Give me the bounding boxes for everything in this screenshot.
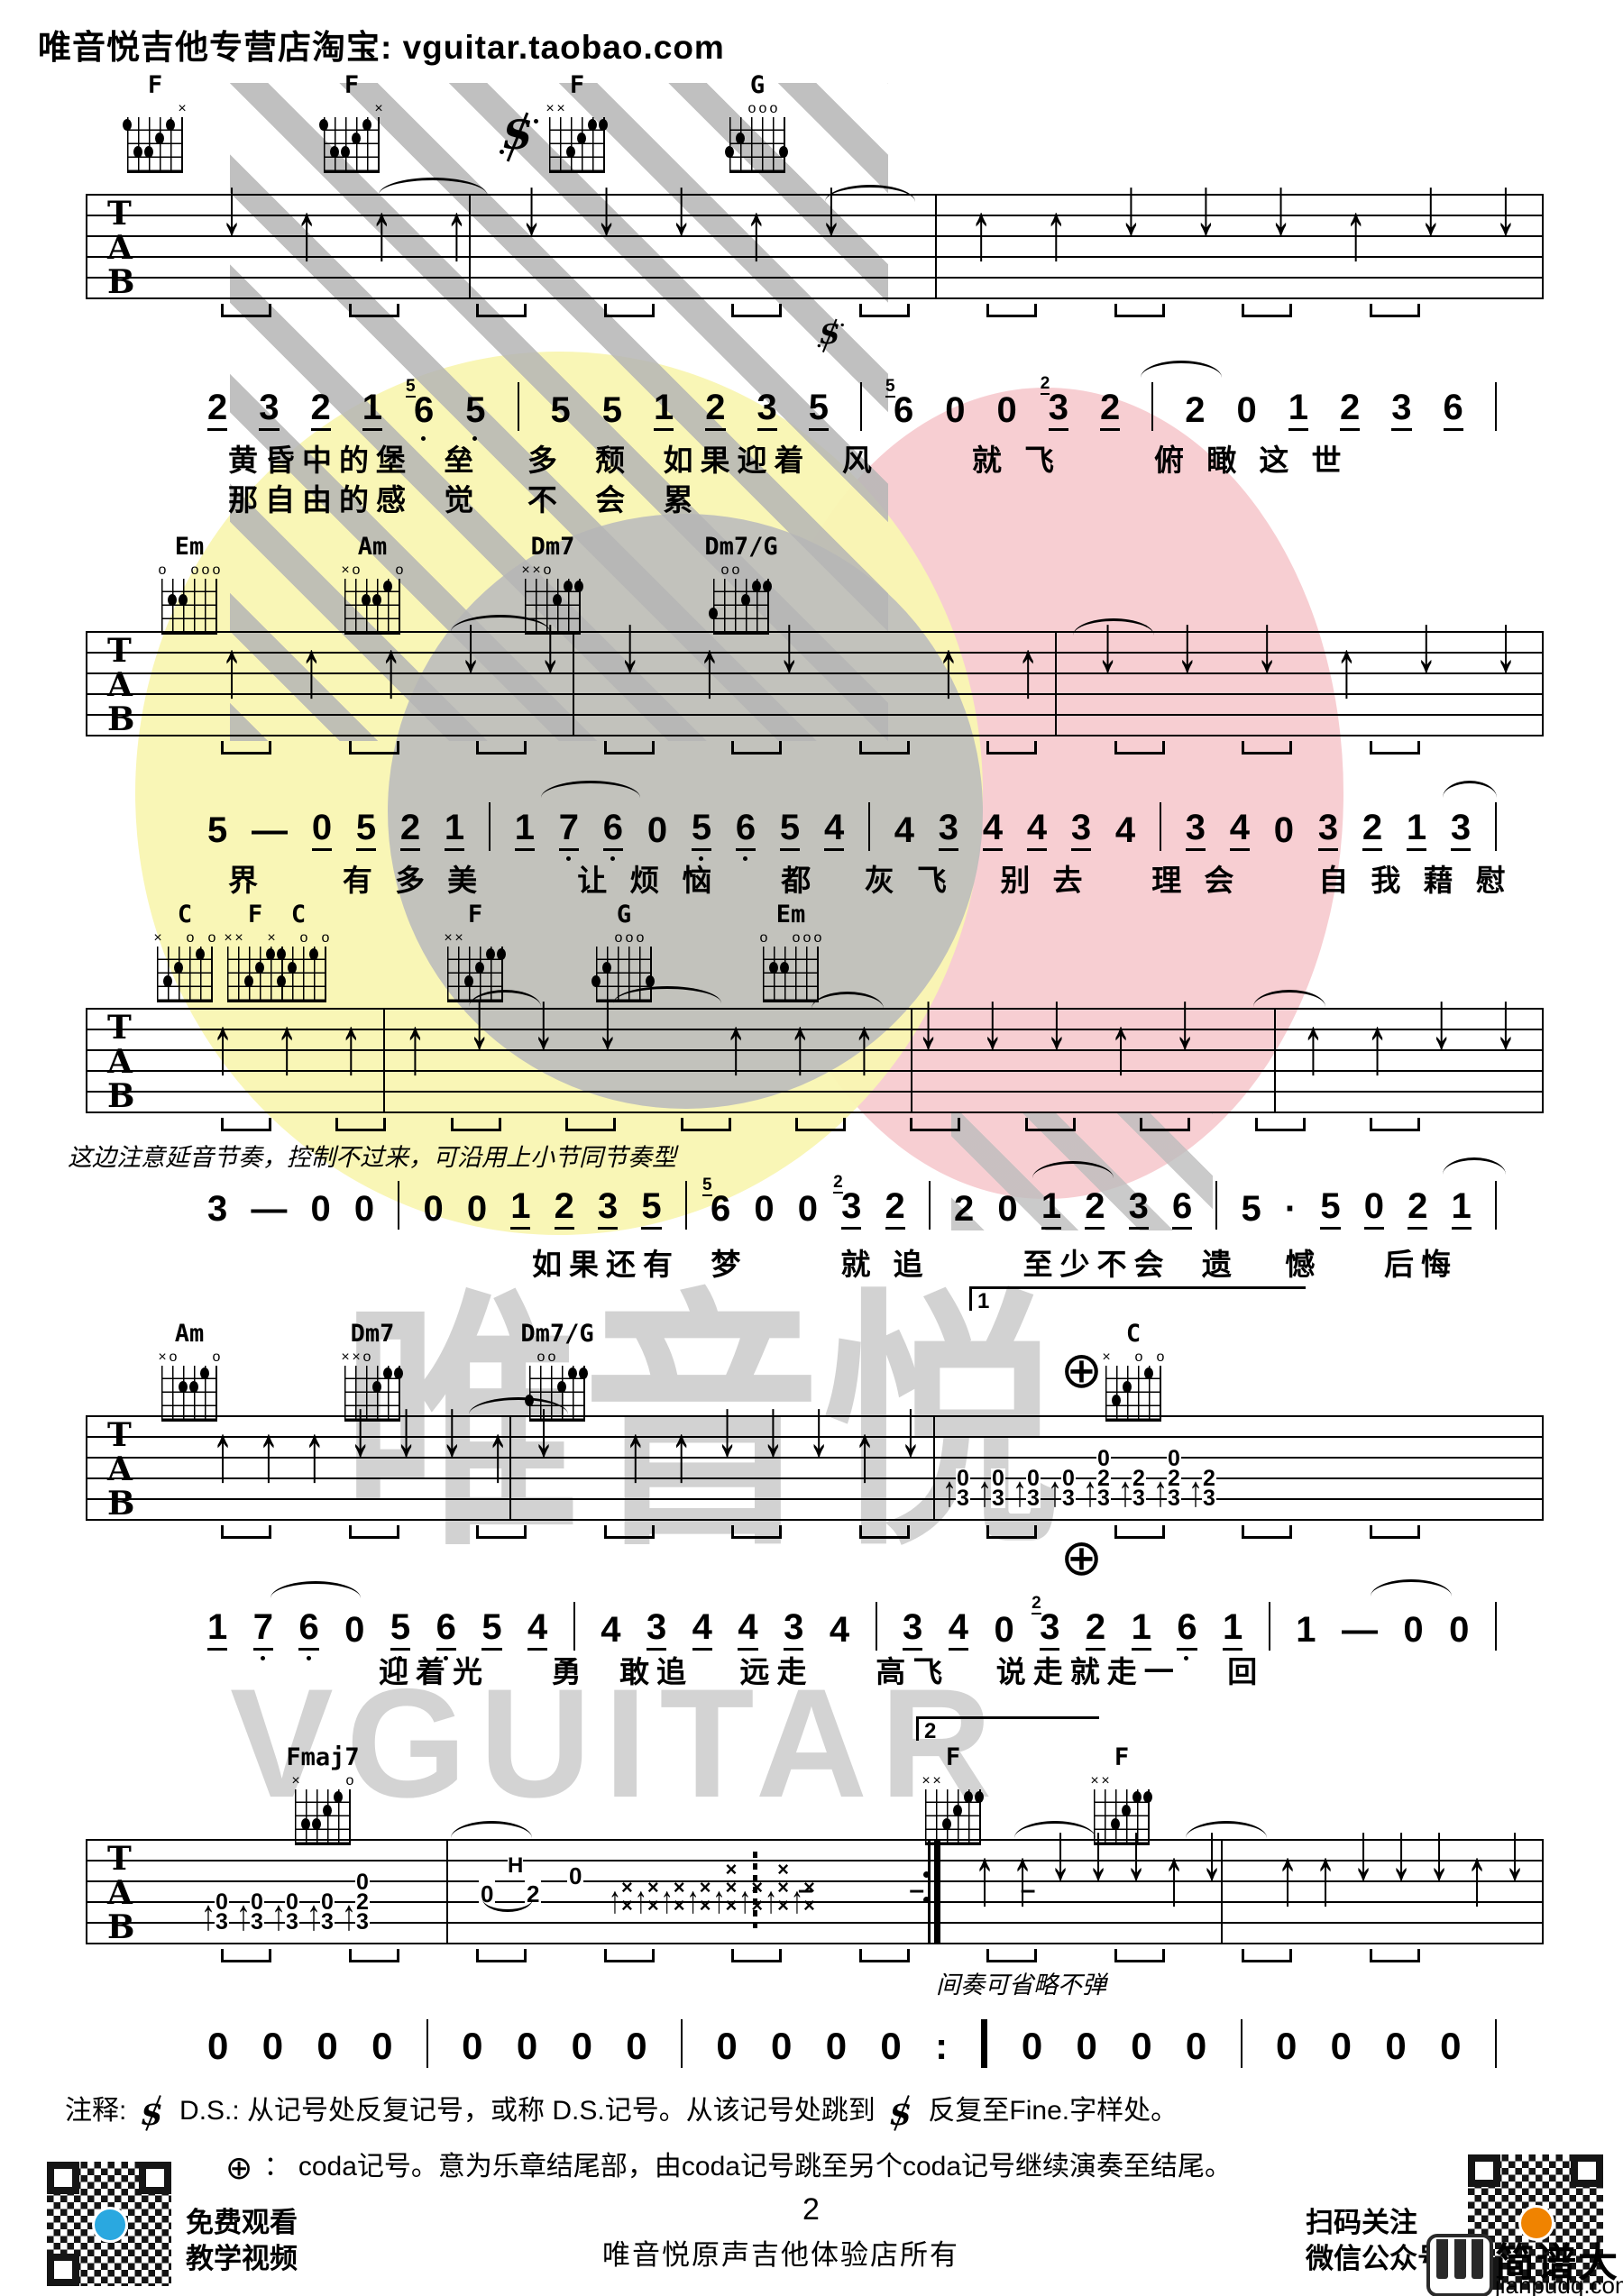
tab-letter-T: T: [107, 1419, 132, 1451]
tab-letter-A: A: [107, 232, 133, 264]
chord-marks: ooo: [730, 101, 784, 117]
chord-dot: [1111, 1818, 1120, 1830]
chord-C: C ×oo: [147, 901, 223, 1002]
strum-arrows: ↑↑↑↓↓↓↑↓↑↑↓↓↓↑↓: [212, 1406, 922, 1525]
note-token: 0: [647, 812, 667, 851]
grace-number: 2: [1032, 1595, 1041, 1615]
tab-letter-T: T: [107, 635, 132, 667]
chord-dot: [133, 146, 142, 158]
chord-dot: [277, 975, 286, 987]
chord-label: G: [586, 901, 662, 930]
tab-token-column: 03: [285, 1872, 299, 1932]
note-digit: 4: [983, 810, 1003, 851]
note-digit: 0: [798, 1191, 818, 1230]
barline: [1241, 2019, 1242, 2068]
string-mark: o: [210, 1349, 223, 1366]
chord-diagram: [713, 579, 769, 635]
note-digit: 4: [692, 1609, 712, 1651]
note-token: 6: [298, 1609, 318, 1651]
note-token: 2: [1086, 1609, 1105, 1651]
note-digit: 3: [1391, 389, 1411, 431]
beam: [1370, 1118, 1420, 1131]
chord-dot: [383, 1368, 392, 1379]
note-token: 0: [1440, 2027, 1461, 2068]
strum-up-icon: ↑: [1367, 1006, 1389, 1088]
note-digit: 5: [207, 812, 227, 851]
chord-dot: [144, 146, 153, 158]
strum-down-icon: ↓: [1270, 167, 1292, 249]
segno-icon: [142, 2098, 165, 2128]
chord-marks: oooo: [162, 563, 216, 579]
note-digit: 5: [390, 1609, 410, 1651]
beam: [476, 1525, 527, 1539]
beam: [1255, 1118, 1306, 1131]
note-digit: 7: [253, 1609, 273, 1651]
chord-dot: [352, 133, 361, 144]
note-token: 0: [423, 1191, 443, 1230]
strum-up-icon: ↑: [371, 192, 392, 274]
tab-token-column: 03: [215, 1872, 229, 1932]
note-digit: 1: [1452, 1188, 1472, 1230]
barline: [1215, 1181, 1217, 1230]
note-digit: 0: [647, 812, 667, 851]
chord-dot: [975, 1791, 984, 1803]
chord-dot: [288, 962, 297, 974]
chord-dot: [394, 1368, 403, 1379]
tab-number: 3: [1061, 1488, 1076, 1508]
note-digit: 2: [1086, 1609, 1105, 1651]
chord-F: F ×: [314, 72, 390, 173]
note-digit: 3: [598, 1188, 618, 1230]
note-digit: 1: [510, 1188, 530, 1230]
chord-marks: ××o: [526, 563, 580, 579]
chord-dot: [566, 146, 575, 158]
note-digit: 5: [551, 392, 571, 431]
note-token: 5: [207, 812, 227, 851]
chord-F: F ××: [437, 901, 513, 1002]
string-mark: ×: [931, 1773, 943, 1789]
tab-number: 3: [1132, 1488, 1146, 1508]
tab-staff-2: T A B ↑↑↑↓↓↓↑↓↑↑↓↓↓↑↓↓: [86, 631, 1544, 736]
note-digit: 2: [1340, 389, 1360, 431]
note-token: 7: [559, 810, 579, 851]
chord-Dm7: Dm7 ××o: [335, 1321, 410, 1422]
note-token: 0: [462, 2027, 482, 2068]
strum-up-icon: ↑: [687, 1879, 700, 1922]
strum-down-icon: ↓: [533, 981, 555, 1063]
strum-up-icon: ↑: [942, 1467, 957, 1517]
note-token: 0: [716, 2027, 737, 2068]
chord-diagram: [127, 117, 183, 173]
chord-dot: [334, 1791, 343, 1803]
chord-dot: [475, 962, 484, 974]
barline: [426, 2019, 428, 2068]
chord-Em: Em oooo: [151, 534, 227, 635]
beam: [1242, 304, 1292, 317]
barline: [1151, 382, 1153, 431]
tab-token: ↑03: [201, 1872, 229, 1932]
note-digit: 2: [705, 389, 725, 431]
strum-up-icon: ↑: [738, 1879, 751, 1922]
page-number: 2: [802, 2192, 820, 2227]
strum-up-icon: ↑: [1163, 1837, 1185, 1919]
strum-up-icon: ↑: [725, 1006, 747, 1088]
note-digit: 0: [1131, 2027, 1151, 2068]
beam: [910, 1118, 960, 1131]
beam: [349, 304, 399, 317]
note-digit: 3: [646, 1609, 666, 1651]
melody-line-4: 176056544344343402321611—00: [207, 1598, 1497, 1651]
note-digit: 0: [311, 1191, 331, 1230]
string-mark: ×: [176, 101, 188, 117]
hammer-arc: [482, 1898, 533, 1912]
caption-line: 免费观看: [186, 2207, 298, 2238]
chord-marks: ××: [926, 1773, 980, 1789]
chord-dot: [123, 119, 132, 131]
beam: [986, 741, 1037, 755]
note-token: 4: [1027, 810, 1047, 851]
beam: [451, 1118, 501, 1131]
note-token: 0: [1276, 2027, 1297, 2068]
string-mark: o: [393, 563, 406, 579]
strum-up-icon: ↑: [236, 1890, 251, 1941]
note-digit: 0: [572, 2027, 592, 2068]
note-digit: 0: [826, 2027, 847, 2068]
note-token: 56: [894, 392, 913, 431]
barline: [489, 802, 491, 851]
note-digit: 2: [311, 389, 331, 431]
footnote-ds: 注释: D.S.: 从记号处反复记号，或称 D.S.记号。从该记号处跳到 反复至…: [65, 2088, 1178, 2128]
muted-token: ↑××: [738, 1879, 763, 1915]
note-digit: 0: [354, 1191, 374, 1230]
beam: [476, 304, 527, 317]
beam: [1025, 1118, 1076, 1131]
hammer-on-label: H: [508, 1853, 523, 1879]
note-token: 0: [994, 1612, 1013, 1651]
note-token: 2: [1085, 1188, 1105, 1230]
note-token: 1: [654, 389, 674, 431]
chord-dot: [189, 1381, 198, 1393]
note-token: 6: [603, 810, 623, 851]
strum-up-icon: ↑: [1335, 629, 1357, 711]
chord-dot: [168, 594, 177, 606]
note-digit: 2: [1362, 810, 1382, 851]
beam: [795, 1118, 846, 1131]
strum-down-icon: ↓: [596, 167, 618, 249]
chord-marks: oooo: [764, 930, 818, 947]
tab-letter-B: B: [107, 1911, 134, 1944]
chord-Em: Em oooo: [753, 901, 829, 1002]
tab-letter-T: T: [107, 197, 132, 230]
chord-marks: ooo: [597, 930, 651, 947]
note-token: 0: [311, 1191, 331, 1230]
chord-dot: [309, 948, 318, 960]
tab-token: ↑023: [1153, 1449, 1181, 1508]
strum-down-icon: ↓: [221, 167, 243, 249]
note-digit: 2: [207, 389, 227, 431]
beam: [335, 1118, 386, 1131]
chord-dot: [579, 1368, 588, 1379]
barline: [681, 2019, 683, 2068]
strum-up-icon: ↑: [212, 1413, 234, 1496]
note-digit: 2: [400, 810, 420, 851]
chord-marks: oo: [530, 1349, 584, 1366]
strum-up-icon: ↑: [1048, 1467, 1062, 1517]
tab-token: ↑23: [1188, 1449, 1216, 1508]
note-token: 2: [1340, 389, 1360, 431]
chord-F: F ××: [1084, 1744, 1160, 1845]
strum-down-icon: ↓: [900, 1388, 922, 1470]
qr-caption-right: 扫码关注 微信公众号: [1306, 2205, 1445, 2277]
note-token: ·: [1285, 1191, 1297, 1230]
note-digit: 6: [436, 1609, 456, 1651]
strum-down-icon: ↓: [1174, 981, 1196, 1063]
chord-dot: [568, 1368, 577, 1379]
melody-line-2: 5—0521176056544344343403213: [207, 799, 1497, 851]
note-digit: 0: [945, 392, 965, 431]
tab-token-column: 03: [991, 1449, 1005, 1508]
chord-dot: [163, 975, 172, 987]
strum-up-icon: ↑: [712, 1879, 725, 1922]
qr-code-left: [47, 2162, 171, 2286]
coda-icon: ⊕: [225, 2149, 252, 2186]
tab-token-column: 03: [1026, 1449, 1041, 1508]
grace-number: 2: [833, 1174, 843, 1194]
note-token: 5: [481, 1609, 501, 1651]
tab-token: ↑03: [1048, 1449, 1076, 1508]
note-token: 23: [841, 1188, 861, 1230]
note-digit: 5: [641, 1188, 661, 1230]
chord-dot: [557, 1381, 566, 1393]
beam: [1370, 741, 1420, 755]
chord-diagram: [157, 947, 213, 1002]
melody-line-1: 23215655512355600232201236: [207, 379, 1497, 431]
note-token: 0: [1364, 1188, 1384, 1230]
strum-up-icon: ↑: [938, 629, 959, 711]
tab-token: ↑023: [342, 1872, 370, 1932]
tab-letter-A: A: [107, 1453, 133, 1486]
chord-F: F ××: [539, 72, 615, 173]
octave-dot: [307, 1656, 311, 1660]
note-token: 0: [207, 2027, 228, 2068]
note-digit: 1: [362, 389, 382, 431]
muted-token: ↑××: [661, 1879, 685, 1915]
note-token: 0: [312, 810, 332, 851]
note-digit: 3: [1049, 389, 1068, 431]
string-mark: ×: [1100, 1349, 1113, 1366]
note-token: 4: [692, 1609, 712, 1651]
segno-icon: [501, 115, 534, 159]
chord-diagram: [763, 947, 819, 1002]
chord-dot: [602, 962, 611, 974]
slur-arc: [379, 178, 487, 195]
tab-arpeggio-tokens: ↑03↑03↑03↑03↑023: [201, 1872, 377, 1932]
chord-dot: [953, 1805, 962, 1816]
lyrics-line-1a: 黄昏中的堡 垒 多 颓 如果迎着 风 就 飞 俯 瞰 这 世: [228, 436, 1349, 480]
note-digit: 1: [654, 389, 674, 431]
strum-up-icon: ↑: [445, 192, 467, 274]
tab-token-column: 023: [355, 1872, 370, 1932]
tab-token-column: 23: [1132, 1449, 1146, 1508]
strum-up-icon: ↑: [671, 1413, 692, 1496]
note-token: 3: [939, 810, 958, 851]
string-mark: ×: [1099, 1773, 1112, 1789]
barline: [981, 2019, 987, 2068]
note-digit: 3: [1071, 810, 1091, 851]
note-token: 0: [1449, 1612, 1469, 1651]
note-digit: 3: [1040, 1609, 1059, 1651]
brand-domain: jianpudq.com: [1495, 2272, 1623, 2296]
note-digit: 5: [602, 392, 622, 431]
note-digit: 0: [312, 810, 332, 851]
grace-number: 2: [1041, 375, 1050, 395]
tie-arc: [1032, 1161, 1114, 1178]
note-digit: 6: [603, 810, 623, 851]
note-token: 3: [757, 389, 777, 431]
beam: [1242, 1949, 1292, 1962]
tab-token: ↑03: [271, 1872, 299, 1932]
chord-label: Dm7: [515, 534, 591, 563]
note-token: 4: [527, 1609, 547, 1651]
beam: [349, 1525, 399, 1539]
barline: [1160, 802, 1161, 851]
chord-dot: [464, 975, 473, 987]
note-token: —: [251, 1191, 287, 1230]
strum-down-icon: ↓: [1177, 604, 1198, 686]
barline: [1495, 382, 1497, 431]
note-token: 4: [738, 1609, 757, 1651]
note-digit: 6: [894, 392, 913, 431]
chord-F: F ×: [117, 72, 193, 173]
chord-diagram: [1094, 1789, 1150, 1845]
note-digit: 4: [601, 1612, 620, 1651]
muted-strum-tokens: ↑××↑××↑××↑××↑×××↑××↑×××↑××: [609, 1861, 815, 1915]
slur-arc: [451, 1821, 532, 1838]
note-token: —: [1342, 1612, 1378, 1651]
string-mark: o: [210, 563, 223, 579]
note-digit: 5: [809, 389, 829, 431]
note-token: 3: [1318, 810, 1338, 851]
note-token: 0: [798, 1191, 818, 1230]
tab-token: ↑023: [1083, 1449, 1111, 1508]
chord-marks: ×oo: [271, 930, 326, 947]
string-mark: ×: [151, 930, 164, 947]
chord-dot: [780, 962, 789, 974]
strum-up-icon: ↑: [1188, 1467, 1203, 1517]
note-digit: 0: [371, 2027, 392, 2068]
strum-up-icon: ↑: [212, 1006, 234, 1088]
tab-number: 3: [285, 1912, 299, 1932]
chord-label: Am: [151, 1321, 227, 1349]
note-token: 2: [954, 1191, 974, 1230]
beam: [476, 1949, 527, 1962]
strum-arrows: ↑↑↑↓↓↓↑↓↑↑↓↓↓↑↓↓: [221, 622, 1517, 741]
note-digit: 6: [298, 1609, 318, 1651]
strum-down-icon: ↓: [1046, 981, 1068, 1063]
strum-squiggle: [753, 1852, 757, 1931]
note-token: 5: [551, 392, 571, 431]
chord-F: F ××: [915, 1744, 991, 1845]
note-digit: 7: [559, 810, 579, 851]
note-digit: 6: [1444, 389, 1463, 431]
chord-label: C: [1096, 1321, 1171, 1349]
note-token: 0: [880, 2027, 901, 2068]
beam: [604, 304, 655, 317]
chord-marks: ×oo: [158, 930, 212, 947]
tie-arc: [270, 1581, 361, 1598]
beam: [221, 741, 271, 755]
note-token: 4: [601, 1612, 620, 1651]
chord-dot: [763, 581, 772, 592]
footnote-ds-text2: 反复至Fine.字样处。: [928, 2096, 1178, 2126]
segno-icon: [819, 321, 840, 351]
note-digit: 4: [894, 812, 914, 851]
octave-dot: [261, 1656, 265, 1660]
chord-dot: [1144, 1368, 1153, 1379]
strum-down-icon: ↓: [1428, 1812, 1450, 1894]
caption-line: 教学视频: [186, 2243, 298, 2274]
mute-x: ×: [674, 1897, 685, 1915]
note-digit: 0: [1077, 2027, 1097, 2068]
chord-dot: [574, 581, 583, 592]
strum-down-icon: ↓: [1195, 167, 1216, 249]
chord-dot: [769, 962, 778, 974]
beam: [1370, 1525, 1420, 1539]
tab-number: 3: [956, 1488, 970, 1508]
string-mark: o: [156, 563, 169, 579]
note-digit: 1: [1041, 1188, 1061, 1230]
note-digit: 3: [1318, 810, 1338, 851]
strum-down-icon: ↓: [1390, 1812, 1412, 1894]
note-token: 2: [1362, 810, 1382, 851]
note-digit: 1: [1223, 1609, 1242, 1651]
chord-dot: [588, 119, 597, 131]
volta-2-bracket: 2: [916, 1716, 1099, 1741]
chord-marks: ××: [1095, 1773, 1149, 1789]
tab-token-column: 023: [1167, 1449, 1181, 1508]
strum-down-icon: ↓: [520, 167, 542, 249]
tab-letter-A: A: [107, 1046, 133, 1078]
note-token: 3: [784, 1609, 803, 1651]
note-digit: 6: [1172, 1188, 1192, 1230]
note-digit: 3: [1186, 810, 1206, 851]
note-digit: 4: [949, 1609, 968, 1651]
note-token: 1: [1041, 1188, 1061, 1230]
beam-row: [221, 741, 1420, 755]
strum-up-icon: ↑: [661, 1879, 674, 1922]
note-token: 0: [572, 2027, 592, 2068]
note-digit: 0: [344, 1612, 364, 1651]
note-token: 3: [903, 1609, 922, 1651]
note-digit: 0: [1276, 2027, 1297, 2068]
chord-dot: [564, 581, 573, 592]
note-token: 0: [1331, 2027, 1352, 2068]
note-token: 2: [1100, 389, 1120, 431]
note-token: 2: [1185, 392, 1205, 431]
note-digit: 0: [1274, 812, 1294, 851]
strum-up-icon: ↑: [789, 1006, 811, 1088]
muted-column: ×××: [777, 1861, 789, 1915]
melody-line-5: 000000000000:00000000: [207, 2016, 1497, 2068]
note-digit: 5: [1320, 1188, 1340, 1230]
note-token: 2: [311, 389, 331, 431]
note-digit: 5: [1242, 1191, 1261, 1230]
muted-column: ××: [621, 1879, 633, 1915]
string-mark: ×: [233, 930, 245, 947]
tie-arc: [1141, 361, 1222, 378]
strum-up-icon: ↑: [699, 629, 720, 711]
note-digit: 3: [903, 1609, 922, 1651]
